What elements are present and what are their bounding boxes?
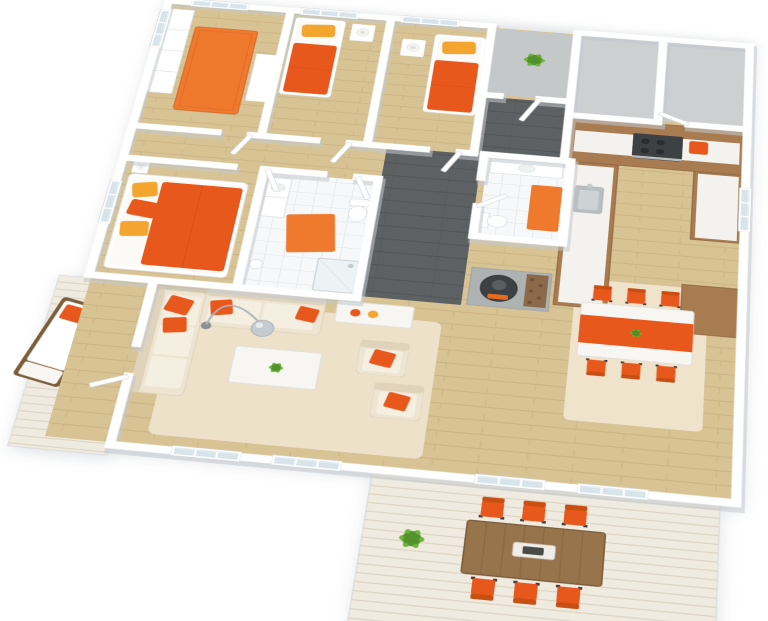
- pillow-yellow-2: [119, 220, 149, 235]
- armchair-1: [355, 339, 410, 377]
- orange-rug: [526, 184, 562, 231]
- storage-1-floor: [573, 35, 659, 119]
- nightstand: [349, 23, 376, 42]
- pillow-orange: [163, 316, 187, 332]
- floorplan-scene: [0, 0, 768, 621]
- orange-rug: [286, 213, 335, 252]
- floorplan-svg: [0, 0, 768, 621]
- armchair-2: [369, 381, 425, 421]
- firewood: [523, 274, 549, 308]
- orange-canister: [689, 141, 708, 154]
- pillow-yellow: [132, 181, 158, 197]
- storage-2-floor: [662, 42, 746, 127]
- nightstand: [400, 38, 427, 57]
- window-kitchen: [738, 187, 751, 232]
- floorplan-3d-tilt: [0, 0, 768, 621]
